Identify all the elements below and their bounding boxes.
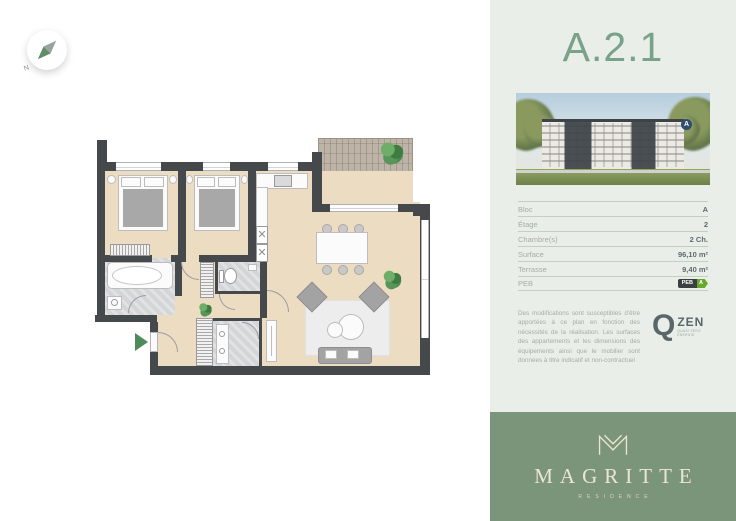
- table-row-peb: PEB PEB A: [518, 276, 708, 291]
- table-row: Surface 96,10 m²: [518, 246, 708, 261]
- spec-label: Bloc: [518, 205, 533, 214]
- bed-2-pillow: [197, 177, 215, 187]
- dining-chair: [354, 265, 364, 275]
- brand-subtitle: RESIDENCE: [573, 494, 652, 500]
- sofa-pillow: [325, 350, 337, 359]
- living-plant-icon: [382, 269, 403, 290]
- qzen-q-letter: Q: [652, 313, 675, 339]
- wall: [105, 255, 152, 262]
- wall-bottom: [150, 366, 430, 375]
- specs-table: Bloc A Étage 2 Chambre(s) 2 Ch. Surface …: [518, 201, 708, 291]
- spec-label: Terrasse: [518, 265, 547, 274]
- window-living-right: [421, 220, 429, 338]
- spec-label: Étage: [518, 220, 538, 229]
- peb-badge-label: PEB: [678, 279, 697, 288]
- table-row: Bloc A: [518, 201, 708, 216]
- unit-title: A.2.1: [490, 24, 736, 71]
- hall-plant-icon: [198, 302, 213, 317]
- dining-chair: [322, 265, 332, 275]
- disclaimer-text: Des modifications sont susceptibles d'êt…: [518, 309, 640, 366]
- floor-plan: ✕ ✕: [95, 138, 430, 378]
- spec-value: 2: [704, 220, 708, 229]
- spec-value: 96,10 m²: [678, 250, 708, 259]
- wall: [95, 315, 157, 322]
- nightstand-lamp: [107, 175, 116, 184]
- shower-vanity: [216, 324, 229, 364]
- kitchen-sink: [274, 175, 292, 187]
- peb-badge-rating: A: [697, 279, 708, 288]
- wall: [248, 171, 256, 262]
- bed-1-pillow: [121, 177, 141, 187]
- spec-label: Chambre(s): [518, 235, 558, 244]
- qzen-logo: Q ZEN QUASI ZERO ENERGIE: [652, 309, 708, 366]
- wall: [150, 352, 158, 366]
- window: [203, 162, 230, 171]
- toilet-icon: [224, 268, 237, 284]
- info-sidebar: A.2.1 A Bloc A Étage 2 Chambre(s) 2 Ch. …: [490, 0, 736, 521]
- window: [116, 162, 161, 171]
- nightstand-lamp: [241, 175, 248, 184]
- window-living-top: [330, 204, 398, 212]
- exterior-mask: [413, 138, 430, 202]
- sink-bowl: [219, 331, 225, 337]
- sink-bowl: [219, 348, 225, 354]
- wall: [150, 322, 158, 332]
- spec-value: 2 Ch.: [690, 235, 708, 244]
- entry-closet: [196, 318, 213, 366]
- dining-table: [316, 232, 368, 264]
- wardrobe: [110, 244, 150, 256]
- nightstand-lamp: [169, 175, 177, 184]
- brand-name: MAGRITTE: [527, 464, 699, 489]
- wall-bedrooms-divider: [178, 171, 186, 262]
- spec-value: A: [703, 205, 708, 214]
- terrace-plant-icon: [378, 141, 406, 165]
- dining-chair: [338, 265, 348, 275]
- bed-2-pillow: [218, 177, 236, 187]
- wc-sink: [248, 264, 257, 271]
- spec-label: PEB: [518, 279, 533, 288]
- peb-energy-badge: PEB A: [678, 279, 708, 288]
- bed-1-blanket: [123, 189, 163, 227]
- wall: [312, 152, 322, 212]
- compass-north-label: N: [23, 64, 30, 72]
- building-photo: A: [516, 93, 710, 185]
- spec-value: 9,40 m²: [682, 265, 708, 274]
- compass: N: [24, 28, 70, 74]
- table-row: Chambre(s) 2 Ch.: [518, 231, 708, 246]
- entrance-door: [150, 332, 158, 352]
- sink-bowl: [111, 299, 118, 306]
- tv-sideboard-line: [271, 326, 272, 356]
- bathtub-basin: [112, 266, 162, 285]
- wall: [260, 262, 267, 318]
- photo-bloc-badge: A: [681, 119, 692, 130]
- nightstand-lamp: [186, 175, 193, 184]
- photo-windows: [542, 123, 684, 167]
- hall-closet: [200, 262, 214, 298]
- coffee-table-small: [327, 322, 343, 338]
- window: [268, 162, 298, 171]
- wall-left: [97, 162, 105, 322]
- qzen-tagline: QUASI ZERO ENERGIE: [677, 329, 708, 337]
- legal-row: Des modifications sont susceptibles d'êt…: [518, 309, 708, 366]
- magritte-monogram-icon: [598, 434, 628, 456]
- bed-2-blanket: [199, 189, 235, 227]
- table-row: Terrasse 9,40 m²: [518, 261, 708, 276]
- sofa-pillow: [347, 350, 359, 359]
- floor-plan-sheet: N: [0, 0, 490, 521]
- entrance-arrow-icon: [135, 333, 148, 351]
- brand-footer: MAGRITTE RESIDENCE: [490, 412, 736, 521]
- table-row: Étage 2: [518, 216, 708, 231]
- spec-label: Surface: [518, 250, 544, 259]
- photo-road: [516, 170, 710, 173]
- bed-1-pillow: [144, 177, 164, 187]
- qzen-zen-text: ZEN: [677, 317, 708, 328]
